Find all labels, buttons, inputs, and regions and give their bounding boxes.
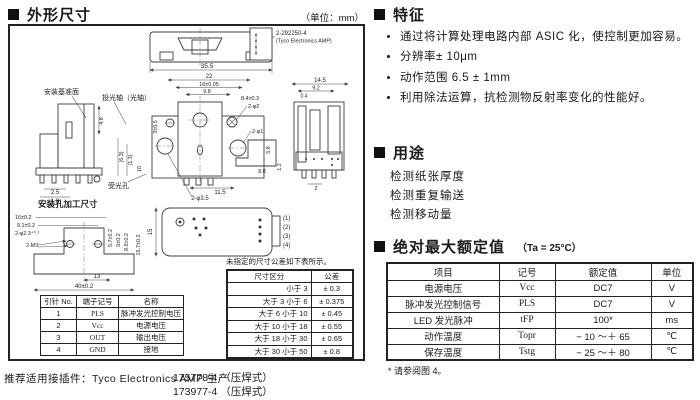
pin-row: 1 PLS 脉冲发光控制电压 — [41, 308, 184, 320]
pin-label-3: (3) — [283, 234, 290, 240]
rating-value: DC7 — [555, 296, 651, 312]
pin-symbol: Vcc — [77, 320, 119, 332]
application-item: 检测纸张厚度 — [390, 168, 465, 187]
pin-label-2: (2) — [283, 225, 290, 231]
tol-col-range: 尺寸区分 — [227, 270, 311, 283]
tolerance-header: 尺寸区分 公差 — [227, 270, 353, 283]
dim-m57: 5.7±0.2 — [108, 229, 114, 247]
application-item: 检测移动量 — [390, 206, 465, 225]
ratings-row: 动作温度 Topr − 10 ～＋ 65 ℃ — [387, 328, 693, 344]
unit-note: （单位：mm） — [214, 10, 364, 24]
pin-no: 2 — [41, 320, 77, 332]
pin-no: 3 — [41, 332, 77, 344]
feature-item: 通过将计算处理电路内部 ASIC 化，使控制更加容易。 — [400, 28, 698, 46]
rating-unit: ℃ — [651, 344, 693, 360]
ratings-row: 电源电压 Vcc DC7 V — [387, 280, 693, 296]
dim-16: 16±0.05 — [199, 82, 218, 88]
rating-symbol: Tstg — [499, 344, 555, 360]
recv-hole-label: 受光孔 — [108, 181, 129, 190]
tol-value: ± 0.55 — [311, 320, 353, 333]
tolerance-row: 小于 3 ± 0.3 — [227, 283, 353, 296]
tol-value: ± 0.3 — [311, 283, 353, 296]
pin-col-name: 名称 — [119, 296, 184, 308]
dim-10: 10 — [137, 166, 143, 172]
rating-unit: V — [651, 296, 693, 312]
dim-0-4: 0.4 — [301, 94, 308, 100]
dim-9-2: 9.2 — [312, 86, 320, 92]
ratings-footnote: * 请参阅图 4。 — [388, 364, 447, 377]
view-top-side: 2-292250-4 (Tyco Electronics AMP) 35.5 — [150, 28, 332, 73]
rating-symbol: PLS — [499, 296, 555, 312]
pin-table-header: 引针 No. 端子记号 名称 — [41, 296, 184, 308]
dim-15: 15 — [148, 228, 154, 235]
tol-value: ± 0.8 — [311, 345, 353, 358]
feature-item: 动作范围 6.5 ± 1mm — [400, 69, 698, 87]
datasheet-page: 外形尺寸 （单位：mm） — [0, 0, 700, 400]
tol-range: 大于 3 小于 6 — [227, 295, 311, 308]
tolerance-row: 大于 18 小于 30 ± 0.65 — [227, 333, 353, 346]
tolerance-row: 大于 10 小于 18 ± 0.55 — [227, 320, 353, 333]
mount-ref-label: 安装基准面 — [44, 87, 79, 96]
view-front: 3±0.5 11.5 2-φ3.5 5.8 8.8 1.2 — [152, 96, 283, 202]
applications-title: 用途 — [393, 142, 425, 163]
rating-item: LED 发光脉冲 — [387, 312, 499, 328]
applications-list: 检测纸张厚度 检测重复输送 检测移动量 — [390, 168, 465, 225]
pin-row: 3 OUT 输出电压 — [41, 332, 184, 344]
pin-symbol: OUT — [77, 332, 119, 344]
ratings-heading: 绝对最大额定值 （Ta = 25°C） — [374, 236, 582, 257]
dim-m91: 9.1±0.2 — [17, 223, 35, 229]
dim-1-3: (1.3) — [128, 154, 134, 165]
rating-symbol: Vcc — [499, 280, 555, 296]
connector-maker: (Tyco Electronics AMP) — [276, 39, 332, 45]
dim-11-5: 11.5 — [214, 190, 226, 196]
dim-14-5: 14.5 — [314, 78, 326, 84]
ratings-header: 项目 记号 额定值 单位 — [387, 263, 693, 280]
rating-symbol: Topr — [499, 328, 555, 344]
rating-value: − 10 ～＋ 65 — [555, 328, 651, 344]
dim-m157: 15.7±0.2 — [136, 235, 142, 256]
dim-m5: 5±0.2 — [116, 233, 122, 246]
dim-2-5: 2.5 — [51, 190, 60, 196]
rating-symbol: tFP — [499, 312, 555, 328]
pin-col-no: 引针 No. — [41, 296, 77, 308]
dim-m16: 16±0.2 — [15, 215, 31, 221]
ratings-col-value: 额定值 — [555, 263, 651, 280]
tolerance-row: 大于 30 小于 50 ± 0.8 — [227, 345, 353, 358]
tol-range: 大于 10 小于 18 — [227, 320, 311, 333]
rating-item: 脉冲发光控制信号 — [387, 296, 499, 312]
page-title: 外形尺寸 — [27, 4, 91, 25]
pin-row: 4 GND 接地 — [41, 344, 184, 356]
dim-35-5: 35.5 — [201, 63, 214, 70]
rating-item: 电源电压 — [387, 280, 499, 296]
view-right-side: 14.5 9.2 0.4 2 — [292, 78, 348, 192]
features-list: 通过将计算处理电路内部 ASIC 化，使控制更加容易。 分辨率± 10μm 动作… — [386, 28, 698, 110]
optical-axis-label: 投光轴（光轴） — [102, 93, 151, 102]
dim-2-phi1: 2-φ1 — [252, 129, 263, 135]
pin-table: 引针 No. 端子记号 名称 1 PLS 脉冲发光控制电压 2 Vcc 电源电压… — [40, 295, 184, 356]
view-mounting-holes: 安装孔加工尺寸 16±0.2 9.1±0.2 2-φ2.3⁺⁰·¹ 2-M3 5… — [15, 199, 142, 290]
pin-symbol: GND — [77, 344, 119, 356]
ratings-row: 脉冲发光控制信号 PLS DC7 V — [387, 296, 693, 312]
rating-unit: ms — [651, 312, 693, 328]
feature-item: 利用除法运算，抗检测物反射率变化的性能好。 — [400, 89, 698, 107]
feature-item: 分辨率± 10μm — [400, 48, 698, 66]
pin-no: 1 — [41, 308, 77, 320]
rating-item: 动作温度 — [387, 328, 499, 344]
features-title: 特征 — [393, 4, 425, 25]
connector-part-no: 2-292250-4 — [276, 31, 307, 37]
tol-value: ± 0.45 — [311, 308, 353, 321]
ratings-condition: （Ta = 25°C） — [517, 239, 582, 254]
ratings-col-item: 项目 — [387, 263, 499, 280]
dim-1-2: 1.2 — [277, 163, 283, 171]
tolerance-block: 未指定的尺寸公差如下表所示。 尺寸区分 公差 小于 3 ± 0.3 大于 3 小… — [226, 256, 360, 359]
applications-heading: 用途 — [374, 142, 425, 163]
tol-value: ± 0.65 — [311, 333, 353, 346]
dim-m23: 2-φ2.3⁺⁰·¹ — [15, 230, 40, 237]
dim-5-8: 5.8 — [266, 146, 272, 154]
tolerance-row: 大于 6 小于 10 ± 0.45 — [227, 308, 353, 321]
tol-range: 大于 6 小于 10 — [227, 308, 311, 321]
tol-range: 小于 3 — [227, 283, 311, 296]
pin-symbol: PLS — [77, 308, 119, 320]
connector-part-numbers: 175778-4 （压焊式） 173977-4 （压焊式） — [173, 371, 273, 399]
tolerance-row: 大于 3 小于 6 ± 0.375 — [227, 295, 353, 308]
tolerance-note: 未指定的尺寸公差如下表所示。 — [226, 256, 360, 267]
dim-m3: 2-M3 — [26, 243, 38, 249]
pin-row: 2 Vcc 电源电压 — [41, 320, 184, 332]
ratings-table-wrap: 项目 记号 额定值 单位 电源电压 Vcc DC7 V 脉冲发光控制信号 PLS… — [386, 262, 694, 361]
ratings-table: 项目 记号 额定值 单位 电源电压 Vcc DC7 V 脉冲发光控制信号 PLS… — [386, 262, 694, 361]
mounting-holes-title: 安装孔加工尺寸 — [38, 199, 98, 209]
rating-item: 保存温度 — [387, 344, 499, 360]
features-heading: 特征 — [374, 4, 425, 25]
section-marker-icon — [374, 147, 385, 158]
rating-value: DC7 — [555, 280, 651, 296]
application-item: 检测重复输送 — [390, 187, 465, 206]
pin-label-4: (4) — [283, 243, 290, 249]
dim-9-8: 9.8 — [203, 89, 211, 95]
outline-section-heading: 外形尺寸 — [8, 4, 91, 25]
connector-part: 173977-4 （压焊式） — [173, 385, 273, 399]
tolerance-table: 尺寸区分 公差 小于 3 ± 0.3 大于 3 小于 6 ± 0.375 大于 … — [226, 269, 354, 359]
ratings-col-unit: 单位 — [651, 263, 693, 280]
tol-value: ± 0.375 — [311, 295, 353, 308]
dim-4-8: 4.8 — [99, 117, 105, 125]
connector-part: 175778-4 （压焊式） — [173, 371, 273, 385]
rating-unit: ℃ — [651, 328, 693, 344]
pin-col-symbol: 端子记号 — [77, 296, 119, 308]
pin-name: 输出电压 — [119, 332, 184, 344]
dim-22: 22 — [206, 74, 213, 80]
ratings-title: 绝对最大额定值 — [393, 236, 505, 257]
dim-m13: 13 — [94, 274, 101, 280]
outline-drawing-panel: 2-292250-4 (Tyco Electronics AMP) 35.5 2… — [8, 24, 365, 361]
tol-col-value: 公差 — [311, 270, 353, 283]
rating-value: − 25 ～＋ 80 — [555, 344, 651, 360]
view-bottom: 15 (1) (2) (3) (4) — [148, 208, 290, 256]
ratings-row: LED 发光脉冲 tFP 100* ms — [387, 312, 693, 328]
dim-8-8: 8.8 — [258, 169, 266, 175]
dim-2: 2 — [315, 186, 318, 192]
tol-range: 大于 30 小于 50 — [227, 345, 311, 358]
pin-name: 电源电压 — [119, 320, 184, 332]
pin-no: 4 — [41, 344, 77, 356]
tol-range: 大于 18 小于 30 — [227, 333, 311, 346]
pin-name: 接地 — [119, 344, 184, 356]
view-left-side: 安装基准面 投光轴（光轴） 4.8 2.5 — [36, 87, 151, 205]
rating-value: 100* — [555, 312, 651, 328]
dim-m40: 40±0.2 — [75, 284, 94, 290]
section-marker-icon — [374, 9, 385, 20]
pin-label-1: (1) — [283, 216, 290, 222]
dim-3-0-5: 3±0.5 — [153, 120, 159, 133]
dim-m85: 8.5±0.2 — [124, 233, 130, 251]
pin-name: 脉冲发光控制电压 — [119, 308, 184, 320]
section-marker-icon — [374, 241, 385, 252]
dim-2-phi3-5: 2-φ3.5 — [191, 196, 209, 202]
rating-unit: V — [651, 280, 693, 296]
dim-6-3: (6.3) — [119, 151, 125, 162]
ratings-row: 保存温度 Tstg − 25 ～＋ 80 ℃ — [387, 344, 693, 360]
dim-2-phi2: 2-φ2 — [248, 104, 259, 110]
section-marker-icon — [8, 9, 19, 20]
dim-8-4: 8.4±0.3 — [241, 96, 259, 102]
ratings-col-symbol: 记号 — [499, 263, 555, 280]
